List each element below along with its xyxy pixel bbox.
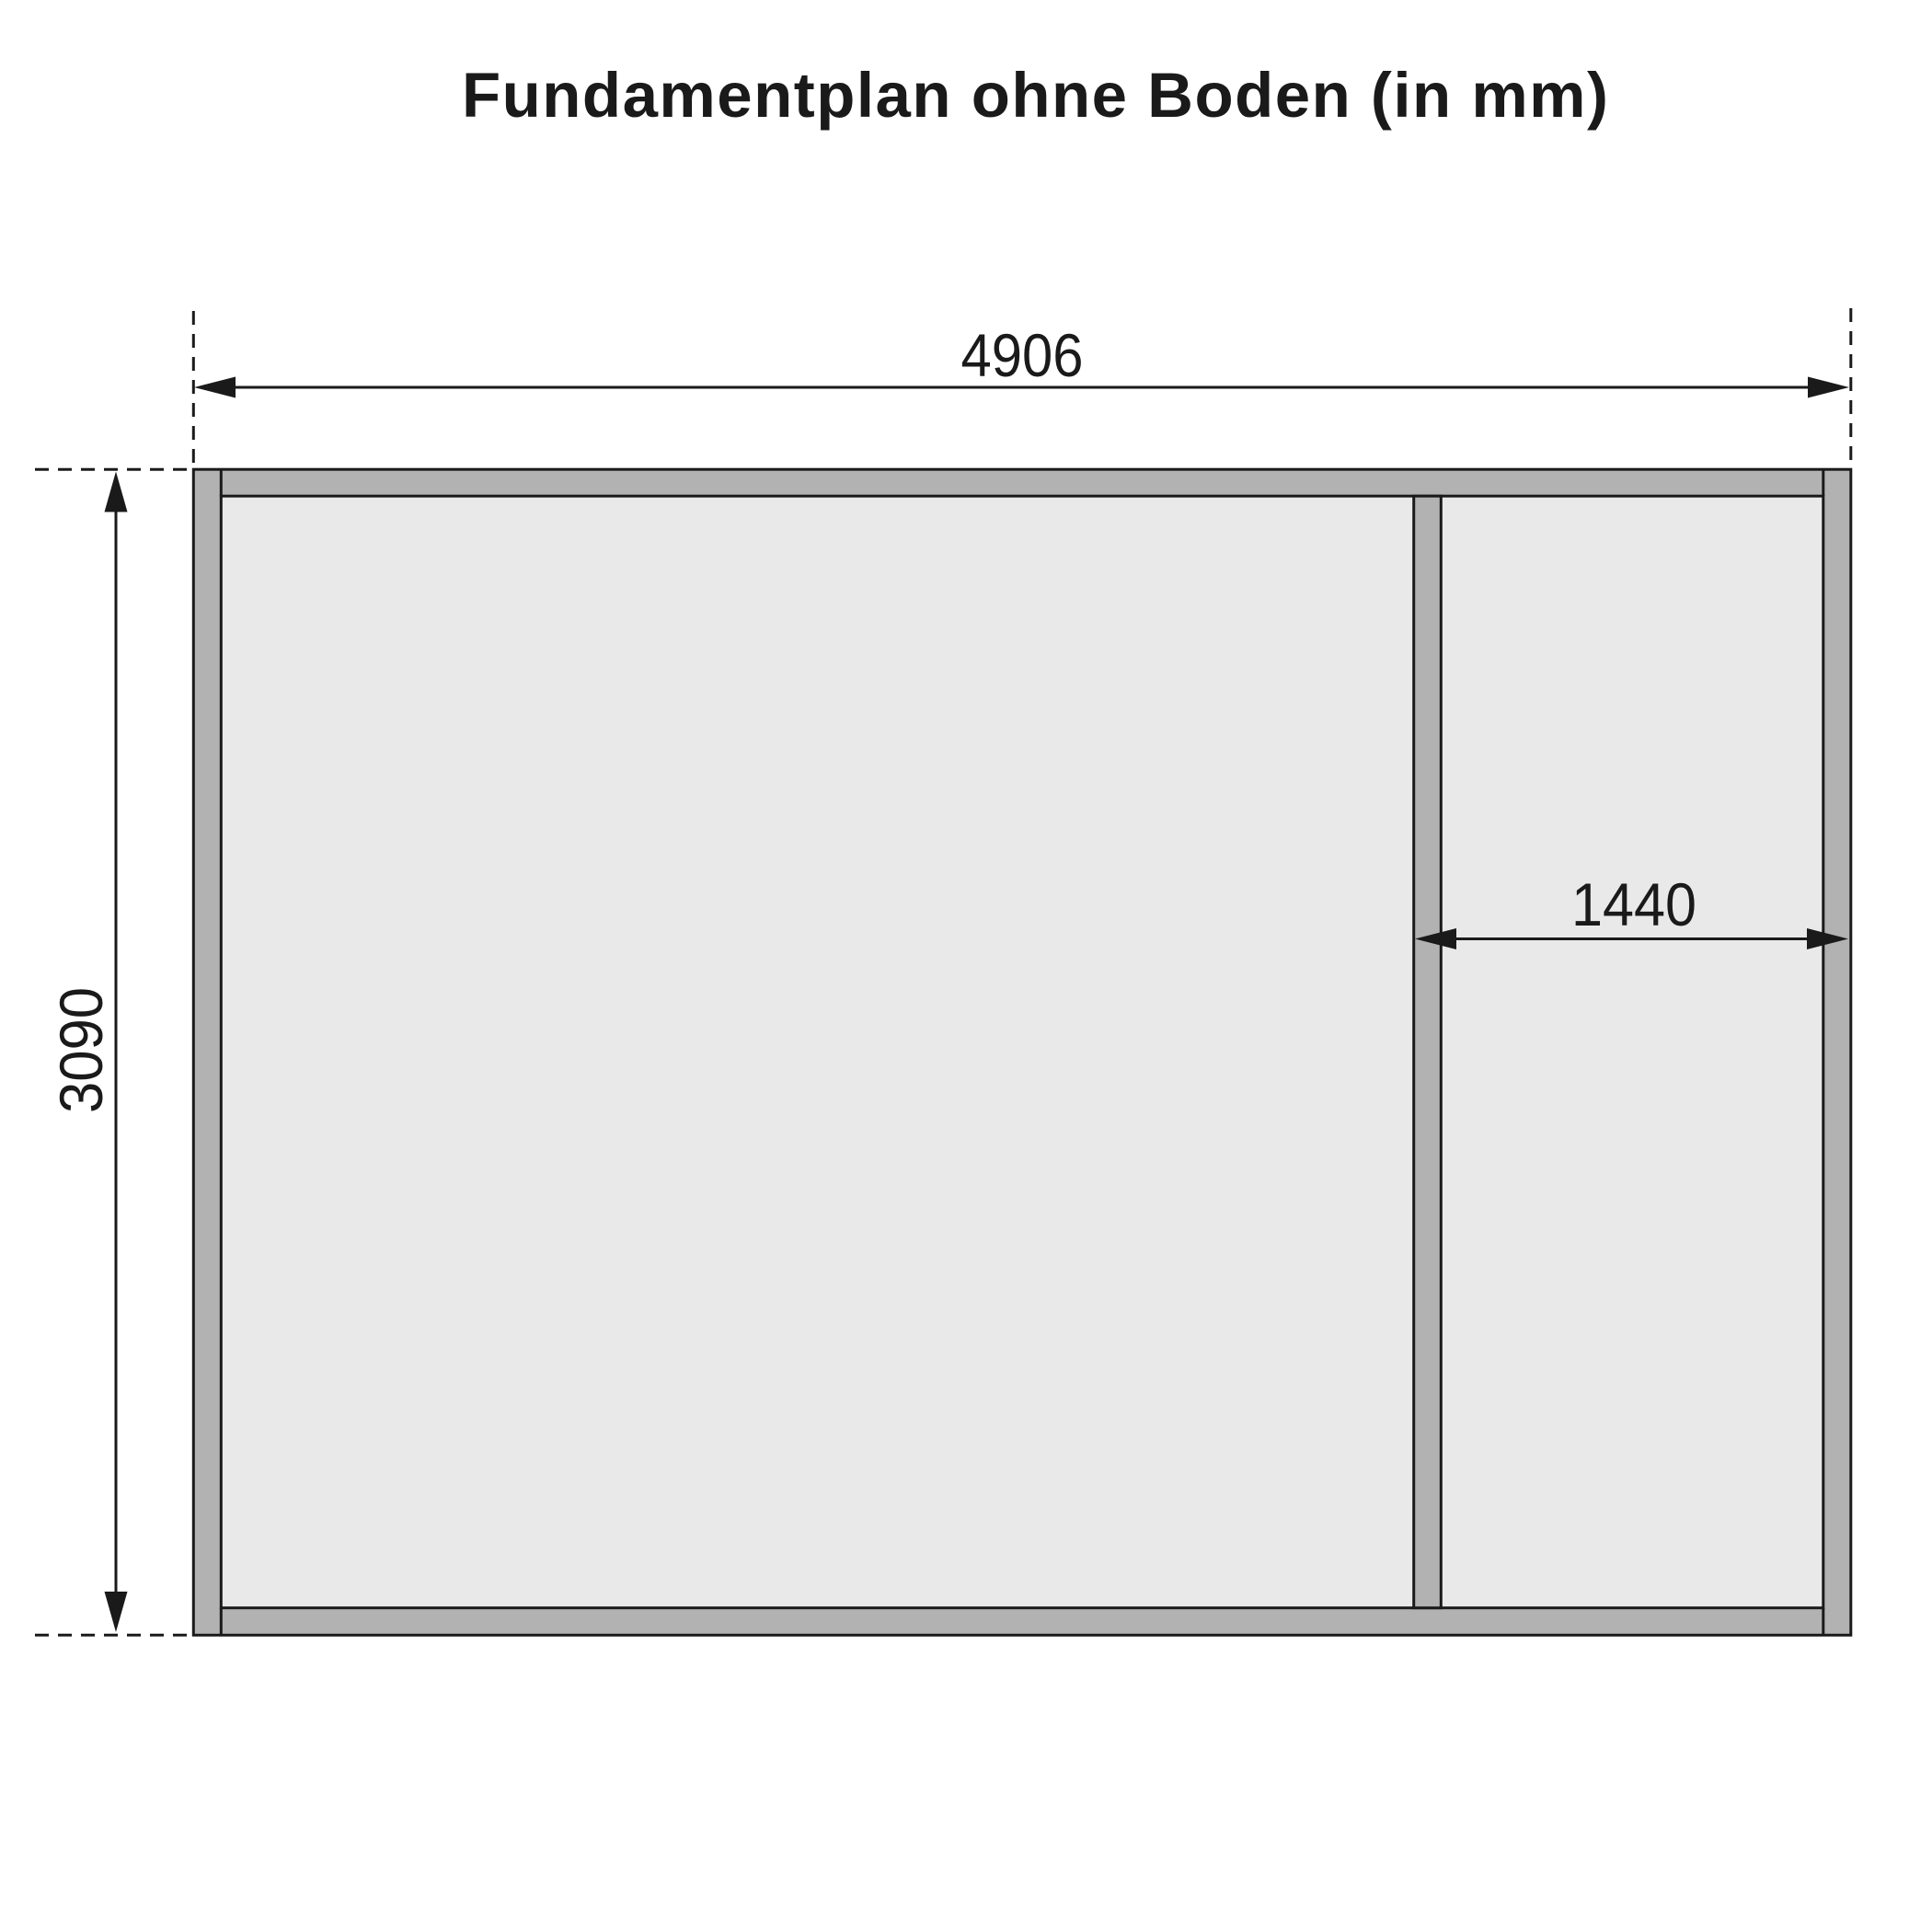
- svg-text:1440: 1440: [1571, 870, 1696, 938]
- svg-text:Fundamentplan ohne Boden (in m: Fundamentplan ohne Boden (in mm): [462, 60, 1608, 131]
- svg-text:3090: 3090: [47, 987, 115, 1113]
- svg-text:4906: 4906: [961, 321, 1084, 389]
